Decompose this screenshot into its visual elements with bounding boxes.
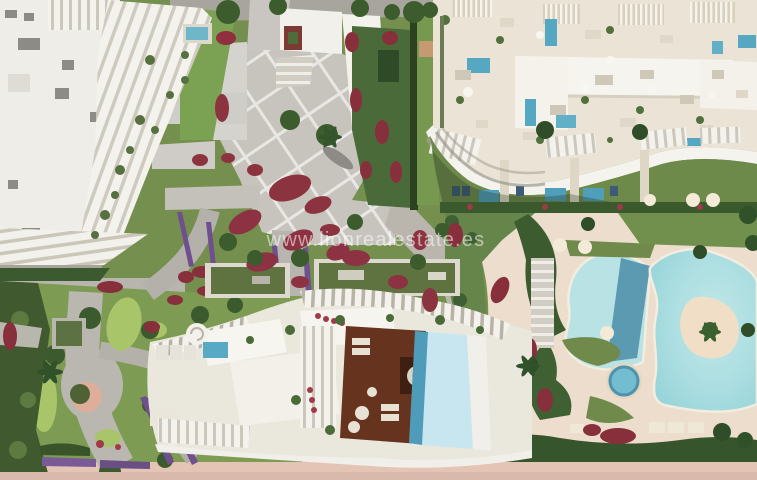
svg-text:www.lionrealestate.es: www.lionrealestate.es [266, 229, 486, 251]
